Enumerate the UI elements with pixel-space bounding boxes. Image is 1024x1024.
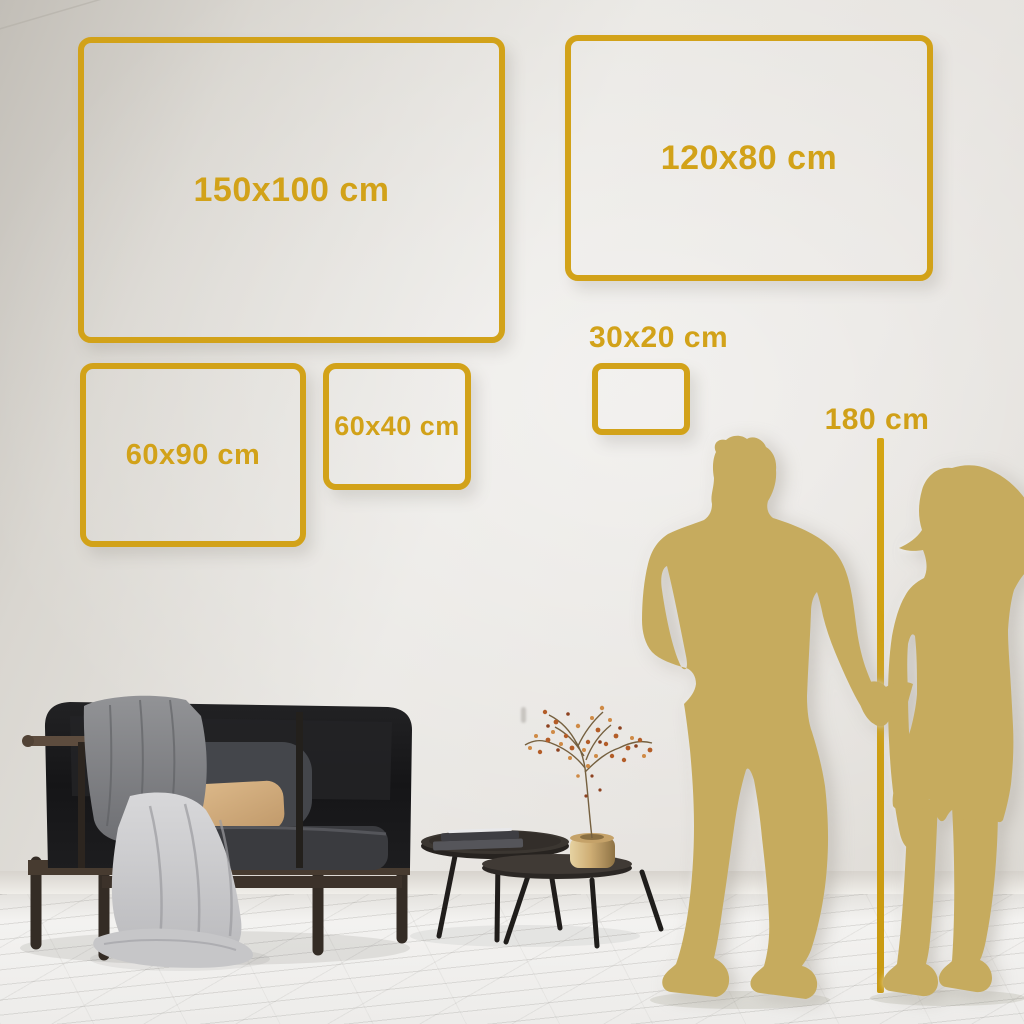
size-frame-120x80: 120x80 cm	[565, 35, 933, 281]
size-label-30x20: 30x20 cm	[589, 321, 728, 355]
baseboard	[0, 871, 1024, 895]
size-frame-30x20	[592, 363, 690, 435]
size-label-60x90: 60x90 cm	[126, 439, 261, 472]
height-ruler-line	[877, 438, 884, 993]
size-label-150x100: 150x100 cm	[194, 171, 390, 210]
wall-smudge	[521, 707, 526, 723]
size-label-60x40: 60x40 cm	[334, 411, 460, 442]
height-marker-label: 180 cm	[825, 403, 930, 437]
size-frame-60x40: 60x40 cm	[323, 363, 471, 490]
size-frame-150x100: 150x100 cm	[78, 37, 505, 343]
ceiling-corner	[0, 0, 140, 40]
size-guide-image: 150x100 cm 120x80 cm 60x90 cm 60x40 cm 3…	[0, 0, 1024, 1024]
floor	[0, 894, 1024, 1024]
size-label-120x80: 120x80 cm	[661, 139, 838, 178]
size-frame-60x90: 60x90 cm	[80, 363, 306, 547]
